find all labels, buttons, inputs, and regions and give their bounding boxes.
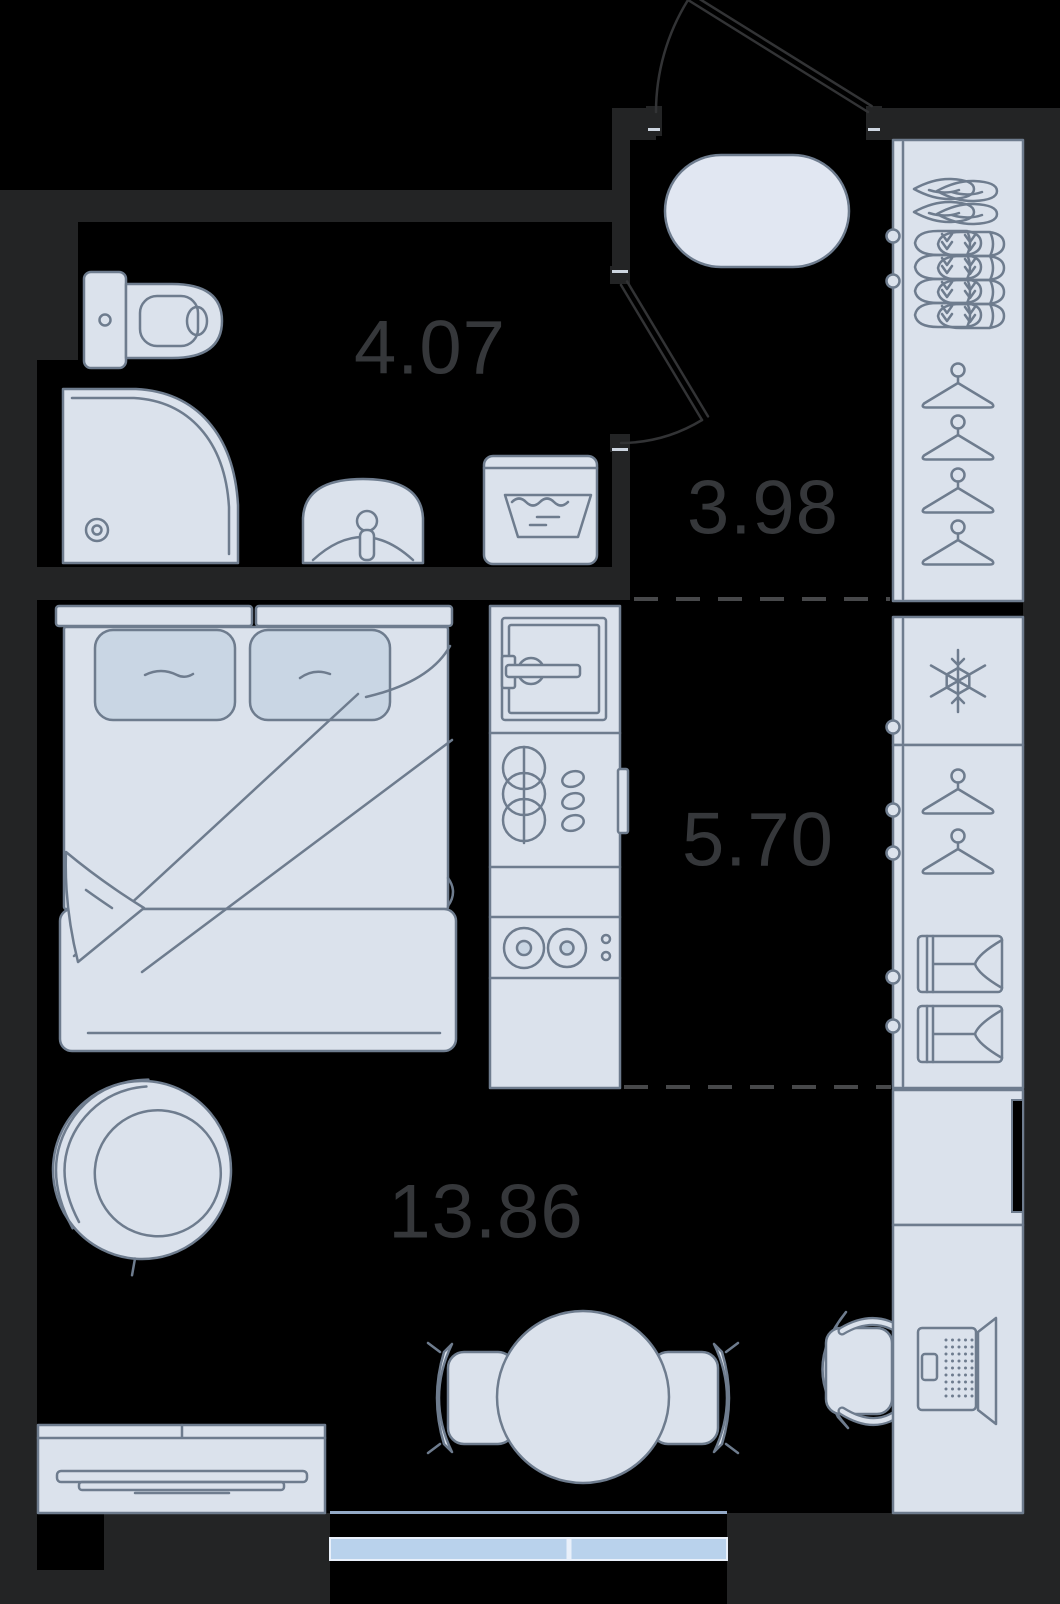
wall-bottom-left (104, 1513, 330, 1604)
oven-handle (506, 665, 580, 677)
entry-door-jamb-left (646, 106, 662, 136)
washing-machine (484, 456, 597, 564)
bed (56, 606, 456, 1051)
wall-right-outer (1023, 108, 1060, 1604)
window-sill-line (330, 1511, 727, 1514)
wall-left-outer (0, 190, 37, 1604)
wall-bathroom-right-upper (612, 140, 630, 268)
entry-door-leaf (688, 0, 872, 112)
cabinet-above-desk (893, 1090, 1023, 1225)
wall-bottom-right (727, 1513, 1060, 1604)
kitchen-unit (490, 606, 628, 1088)
bathroom-sink (303, 479, 423, 563)
floor-plan: 4.07 3.98 5.70 13.86 (0, 0, 1060, 1604)
room-area-label-bathroom: 4.07 (354, 306, 506, 391)
bathroom-door-swing-arc (621, 420, 702, 443)
dining-set (428, 1311, 738, 1483)
wall-bathroom-pilaster (37, 222, 78, 360)
chair-seat (826, 1328, 892, 1414)
bath-door-jamb-slit-top (612, 270, 628, 273)
entry-door-swing-arc (656, 0, 688, 112)
floor-plan-drawing: 4.07 3.98 5.70 13.86 (0, 0, 1060, 1604)
fridge-door-knob (887, 721, 900, 734)
wall-entry-top-right (866, 108, 1023, 140)
cabinet-door-recess (1012, 1100, 1023, 1212)
pillow (95, 630, 235, 720)
wardrobe-lower (887, 745, 1024, 1088)
bed-headboard-right (256, 606, 452, 626)
entry-door (656, 0, 872, 112)
room-area-label-hallway: 3.98 (687, 466, 839, 551)
wall-bathroom-bottom (37, 567, 630, 600)
wardrobe-door-knob (887, 847, 900, 860)
bed-headboard-left (56, 606, 252, 626)
wall-bottom-left-low (0, 1570, 110, 1604)
bathroom-door (621, 281, 708, 443)
entry-wardrobe (887, 140, 1024, 601)
armchair (30, 1058, 257, 1290)
bathroom-door-leaf (621, 281, 708, 420)
bathroom-fixtures (63, 272, 597, 564)
bed-foot-bench (60, 909, 456, 1051)
pillow (250, 630, 390, 720)
entry-door-jamb-slit-right (868, 128, 880, 131)
wardrobe-door-knob (887, 275, 900, 288)
desk (893, 1225, 1023, 1513)
wardrobe-door-knob (887, 230, 900, 243)
entry-door-jamb-slit-left (648, 128, 660, 131)
bath-door-jamb-slit-bottom (612, 448, 628, 451)
wardrobe-door-knob (887, 971, 900, 984)
room-area-label-living: 13.86 (388, 1170, 583, 1255)
dining-table (497, 1311, 669, 1483)
toilet (84, 272, 222, 368)
room-area-label-kitchen: 5.70 (682, 798, 834, 883)
sink-faucet-icon (357, 511, 377, 531)
tv-stand (38, 1425, 325, 1513)
window-glazing-band (330, 1538, 727, 1560)
window (330, 1511, 727, 1560)
entry-door-jamb-right (866, 106, 882, 136)
wall-bathroom-top (0, 190, 630, 222)
fridge (887, 617, 1024, 745)
shower (63, 389, 238, 563)
hallway-rug (665, 155, 849, 267)
wardrobe-door-knob (887, 1020, 900, 1033)
desk-chair (822, 1312, 898, 1428)
wall-bathroom-right-lower (612, 452, 630, 600)
wardrobe-door-knob (887, 804, 900, 817)
